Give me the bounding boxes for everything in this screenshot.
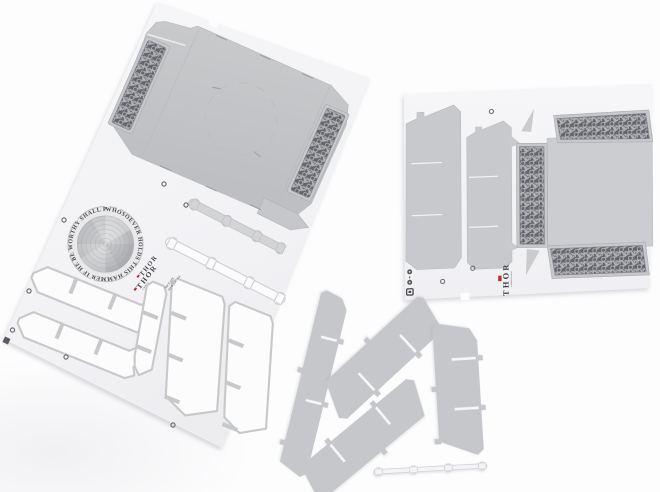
svg-text:THOR: THOR	[502, 262, 511, 296]
svg-text:© MARVEL ©2014: © MARVEL ©2014	[510, 271, 513, 286]
